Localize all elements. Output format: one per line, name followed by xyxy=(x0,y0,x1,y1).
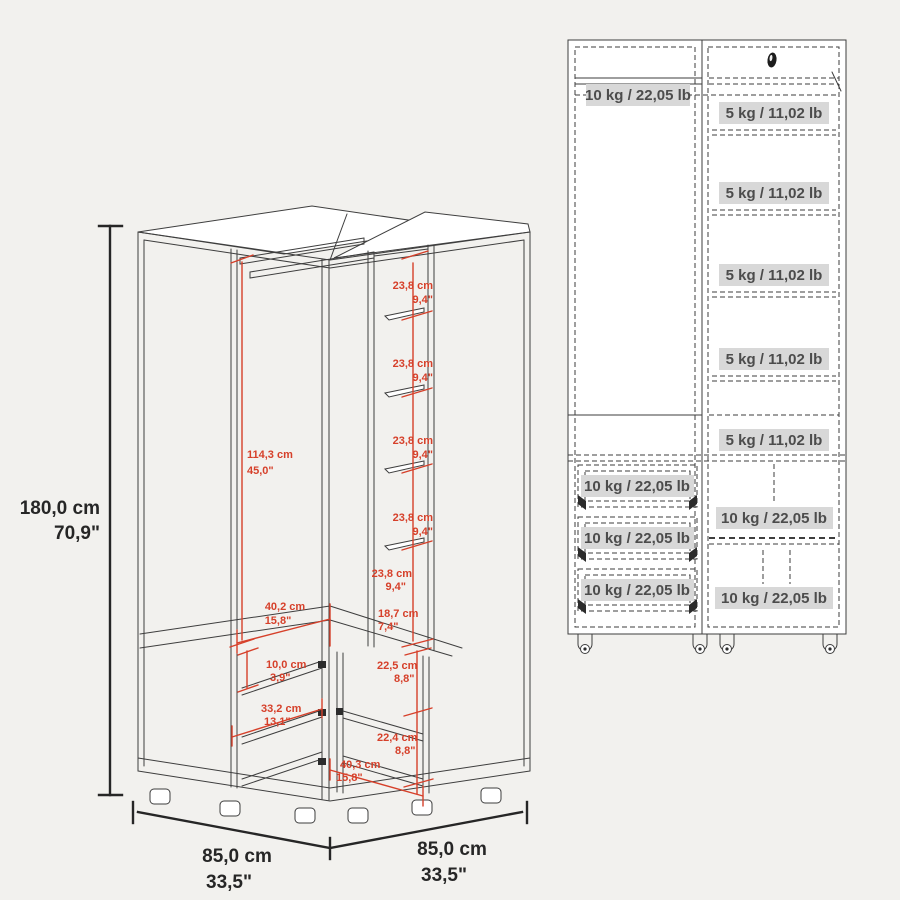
shelf-capacity-3: 5 kg / 11,02 lb xyxy=(726,267,823,284)
dim-cubby-cm: 10,0 cm xyxy=(266,659,307,671)
dim-height-cm: 180,0 cm xyxy=(20,498,100,519)
dim-gap5-in: 9,4" xyxy=(385,581,406,593)
red-dimension-lines xyxy=(230,251,433,806)
dim-opening-in: 15,8" xyxy=(265,615,292,627)
dim-rightlower-in: 8,8" xyxy=(395,745,416,757)
dim-widthL-cm: 85,0 cm xyxy=(202,846,272,867)
shelf-capacity-1: 5 kg / 11,02 lb xyxy=(726,105,823,122)
dim-gap3-in: 9,4" xyxy=(412,449,433,461)
dim-gap2-cm: 23,8 cm xyxy=(393,358,434,370)
dim-gap1-cm: 23,8 cm xyxy=(393,280,434,292)
casters xyxy=(578,634,837,654)
furniture-dimension-sheet: 114,3 cm 45,0" 23,8 cm 9,4" 23,8 cm 9,4"… xyxy=(0,0,900,900)
wardrobe-feet xyxy=(150,788,501,823)
dim-hanging-cm: 114,3 cm xyxy=(247,449,293,461)
drawer-capacity-1: 10 kg / 22,05 lb xyxy=(584,478,690,495)
dim-gap4-cm: 23,8 cm xyxy=(393,512,434,524)
dim-niche-in: 7,4" xyxy=(378,621,399,633)
dim-widthR-cm: 85,0 cm xyxy=(417,839,487,860)
dim-leftlower-in: 13,1" xyxy=(264,716,291,728)
dim-rightlower-cm: 22,4 cm xyxy=(377,732,418,744)
lower-shelf-capacity-2: 10 kg / 22,05 lb xyxy=(721,590,827,607)
right-front-view: 10 kg / 22,05 lb 5 kg / 11,02 lb 5 kg / … xyxy=(568,40,846,654)
dim-height-in: 70,9" xyxy=(54,523,100,544)
dim-rightupper-in: 8,8" xyxy=(394,673,415,685)
left-isometric-view: 114,3 cm 45,0" 23,8 cm 9,4" 23,8 cm 9,4"… xyxy=(20,206,530,893)
drawer-capacity-2: 10 kg / 22,05 lb xyxy=(584,530,690,547)
dim-hanging-in: 45,0" xyxy=(247,465,274,477)
dim-gap1-in: 9,4" xyxy=(412,294,433,306)
dim-opening-cm: 40,2 cm xyxy=(265,601,306,613)
dim-cubby-in: 3,9" xyxy=(270,672,291,684)
dim-gap4-in: 9,4" xyxy=(412,526,433,538)
shelf-capacity-5: 5 kg / 11,02 lb xyxy=(726,432,823,449)
dim-widthR-in: 33,5" xyxy=(421,865,467,886)
overall-dimension-lines xyxy=(99,226,527,859)
dim-gap5-cm: 23,8 cm xyxy=(372,568,413,580)
dim-loweropening-in: 15,8" xyxy=(336,772,363,784)
shelf-capacity-2: 5 kg / 11,02 lb xyxy=(726,185,823,202)
dim-niche-cm: 18,7 cm xyxy=(378,608,419,620)
dim-gap3-cm: 23,8 cm xyxy=(393,435,434,447)
wardrobe-outline xyxy=(138,214,530,801)
lower-shelf-capacity-1: 10 kg / 22,05 lb xyxy=(721,510,827,527)
dim-loweropening-cm: 40,3 cm xyxy=(340,759,381,771)
dim-gap2-in: 9,4" xyxy=(412,372,433,384)
dim-leftlower-cm: 33,2 cm xyxy=(261,703,302,715)
diagram-canvas: 114,3 cm 45,0" 23,8 cm 9,4" 23,8 cm 9,4"… xyxy=(0,0,900,900)
dim-rightupper-cm: 22,5 cm xyxy=(377,660,418,672)
dim-widthL-in: 33,5" xyxy=(206,872,252,893)
shelf-capacity-4: 5 kg / 11,02 lb xyxy=(726,351,823,368)
drawer-capacity-3: 10 kg / 22,05 lb xyxy=(584,582,690,599)
rod-capacity-label: 10 kg / 22,05 lb xyxy=(585,87,691,104)
